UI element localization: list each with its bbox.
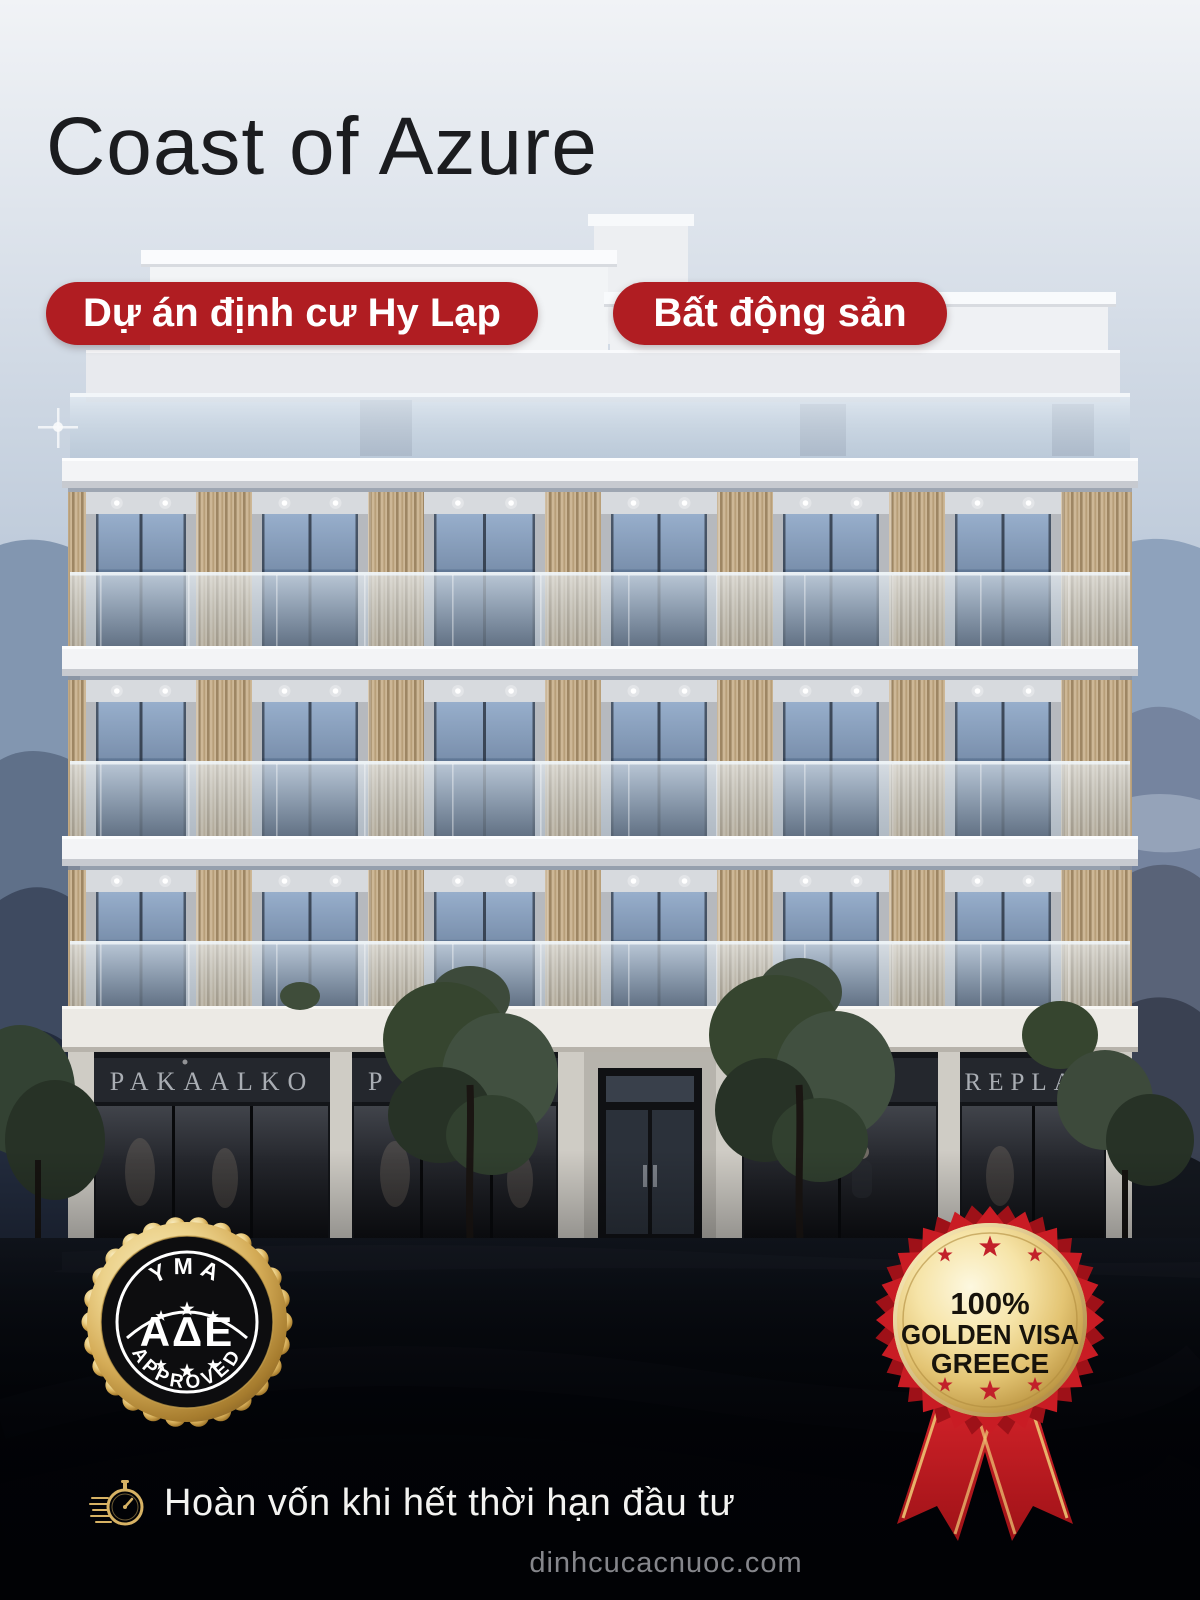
award-line3: GREECE [931, 1348, 1049, 1379]
poster-title: Coast of Azure [46, 100, 598, 194]
approval-seal: YMA ΑΔΕ APPROVED [77, 1212, 297, 1432]
facade-floors [62, 458, 1138, 1006]
website-text: dinhcucacnuoc.com [66, 1547, 1200, 1580]
stopwatch-icon [88, 1474, 146, 1532]
storefront-sign: PAKAALKO [110, 1067, 315, 1096]
tagline-row: Hoàn vốn khi hết thời hạn đầu tư [88, 1474, 735, 1532]
golden-visa-award: 100% GOLDEN VISA GREECE [845, 1192, 1135, 1562]
tagline-text: Hoàn vốn khi hết thời hạn đầu tư [164, 1482, 735, 1525]
award-line1: 100% [950, 1286, 1029, 1321]
property-category-badge: Bất động sản [613, 282, 947, 345]
seal-center-text: ΑΔΕ [140, 1308, 235, 1355]
poster: PAKAALKO P A K A AY REPLAY [0, 0, 1200, 1600]
award-line2: GOLDEN VISA [901, 1319, 1079, 1350]
project-type-badge: Dự án định cư Hy Lạp [46, 282, 538, 345]
